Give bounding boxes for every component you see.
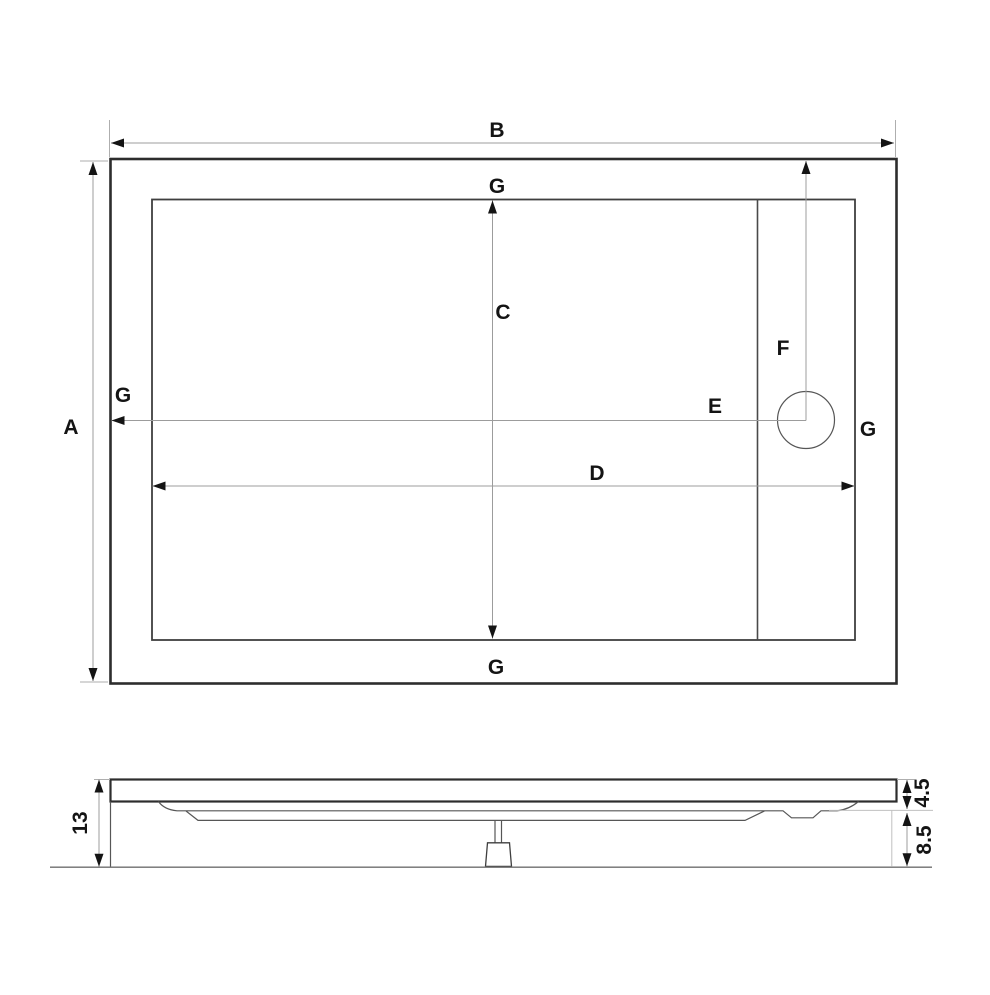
label-dim-c: C bbox=[495, 301, 510, 324]
label-dim-d: D bbox=[589, 462, 604, 485]
arrow-down bbox=[89, 668, 98, 681]
label-dim-f: F bbox=[777, 337, 790, 360]
arrow-down bbox=[95, 854, 104, 867]
dimension-inner-width: D bbox=[153, 462, 855, 491]
dimension-drain-from-left: G E bbox=[112, 384, 807, 425]
dimension-base-height: 8.5 bbox=[903, 813, 937, 866]
arrow-up bbox=[488, 201, 497, 214]
dimension-overall-width: B bbox=[110, 119, 896, 157]
label-dim-13: 13 bbox=[69, 811, 92, 834]
foot-base bbox=[486, 843, 512, 867]
label-rim-bottom: G bbox=[488, 656, 504, 679]
label-rim-left: G bbox=[115, 384, 131, 407]
section-rim bbox=[111, 780, 897, 802]
section-underside-upper-profile bbox=[159, 802, 859, 818]
technical-drawing: B A G C G D bbox=[0, 0, 990, 990]
dimension-drain-from-top: F G bbox=[777, 161, 877, 441]
arrow-left bbox=[111, 139, 124, 148]
dimension-overall-depth: A bbox=[63, 161, 108, 682]
dimension-rim-height: 4.5 bbox=[903, 778, 935, 809]
label-rim-top: G bbox=[489, 175, 505, 198]
drawing-canvas: B A G C G D bbox=[0, 0, 990, 990]
label-rim-right: G bbox=[860, 418, 876, 441]
label-dim-e: E bbox=[708, 395, 722, 418]
dimension-total-height: 13 bbox=[69, 780, 104, 867]
arrow-left bbox=[112, 416, 125, 425]
section-underside-lower-profile bbox=[186, 811, 765, 820]
arrow-right bbox=[842, 482, 855, 491]
dimension-inner-depth: G C G bbox=[488, 175, 511, 679]
arrow-right bbox=[881, 139, 894, 148]
arrow-up bbox=[95, 780, 104, 793]
label-dim-a: A bbox=[63, 416, 78, 439]
arrow-down bbox=[903, 853, 912, 866]
tray-outer-edge bbox=[111, 159, 897, 684]
tray-inner-edge bbox=[152, 200, 855, 641]
arrow-left bbox=[153, 482, 166, 491]
arrow-up bbox=[903, 813, 912, 826]
arrow-up bbox=[802, 161, 811, 174]
arrow-down bbox=[488, 626, 497, 639]
label-dim-b: B bbox=[489, 119, 504, 142]
label-dim-4-5: 4.5 bbox=[911, 778, 934, 808]
section-view: 13 4.5 8.5 bbox=[50, 778, 936, 867]
arrow-up bbox=[89, 162, 98, 175]
plan-view: B A G C G D bbox=[63, 119, 896, 684]
label-dim-8-5: 8.5 bbox=[913, 825, 936, 855]
section-foot bbox=[486, 820, 512, 866]
